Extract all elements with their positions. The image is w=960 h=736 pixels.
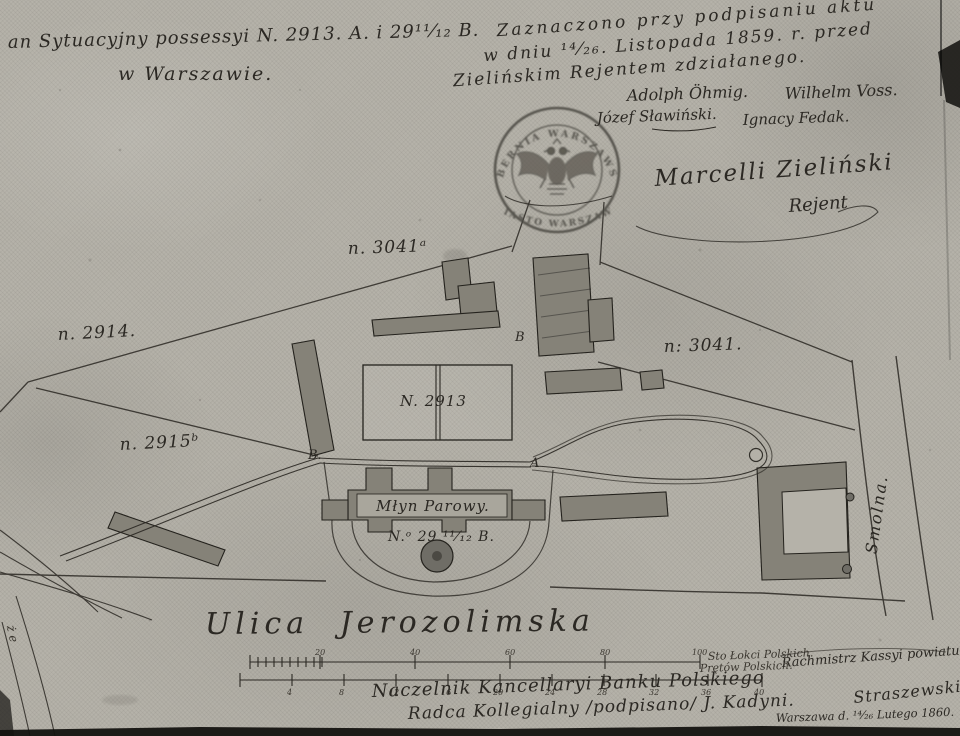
upper-tick-40: 40 — [409, 648, 420, 657]
plan-title-line2: w Warszawie. — [118, 63, 273, 85]
survey-point-a: A — [529, 456, 539, 471]
parcel-label-2915b: n. 2915ᵇ — [119, 431, 200, 455]
upper-tick-80: 80 — [600, 648, 610, 657]
upper-tick-100: 100 — [692, 648, 707, 657]
signature-underline — [652, 127, 716, 131]
building-courtyard-right — [560, 492, 668, 521]
street-name-jerozolimska: Ulica Jerozolimska — [205, 604, 595, 642]
parcel-label-2913: N. 2913 — [399, 392, 467, 410]
building-block-2 — [458, 282, 497, 316]
notary-name: Marcelli Zieliński — [653, 149, 895, 192]
scanned-plan-page: GUBERNIA WARSZAWSKA MIASTO WARSZAWA an S… — [0, 0, 960, 736]
mill-label: Młyn Parowy. — [375, 497, 490, 515]
edge-letters: ż e — [4, 623, 21, 644]
parcel-label-2914: n. 2914. — [57, 321, 136, 345]
lower-tick-1: 4 — [286, 688, 292, 697]
building-letter-b: B — [514, 330, 525, 345]
plan-title-line1: an Sytuacyjny possessyi N. 2913. A. i 29… — [8, 20, 480, 53]
upper-tick-60: 60 — [505, 648, 515, 657]
building-u-complex — [757, 462, 854, 580]
parcel-label-3041: n: 3041. — [663, 334, 742, 357]
witness-signature-3: Józef Sławiński. — [594, 105, 717, 127]
notary-title: Rejent — [787, 192, 849, 217]
building-bar — [545, 368, 622, 394]
building-long-workshop — [372, 311, 500, 336]
footer-right-date: Warszawa d. ¹⁴⁄₂₆ Lutego 1860. — [776, 705, 955, 725]
footer-inscriptions: Naczelnik Kancellaryi Banku Polskiego Ra… — [370, 644, 960, 725]
lower-tick-2: 8 — [339, 688, 344, 697]
witness-signature-4: Ignacy Fedak. — [742, 107, 850, 129]
building-bottom-left — [108, 512, 225, 566]
footer-right-signature: Straszewski — [852, 677, 960, 707]
witness-signature-2: Wilhelm Voss. — [784, 80, 897, 103]
building-narrow-slanted — [292, 340, 334, 456]
plan-drawing: GUBERNIA WARSZAWSKA MIASTO WARSZAWA an S… — [0, 0, 960, 736]
building-small-square — [640, 370, 664, 390]
witness-signature-1: Adolph Öhmig. — [624, 81, 748, 105]
survey-point-b: B. — [307, 448, 322, 463]
building-factory-b — [533, 254, 614, 356]
parcel-label-3041a: n. 3041ᵃ — [347, 236, 427, 259]
upper-tick-20: 20 — [314, 648, 325, 657]
parcel-label-29b: N.ᵒ 29 ¹¹⁄₁₂ B. — [387, 529, 495, 545]
